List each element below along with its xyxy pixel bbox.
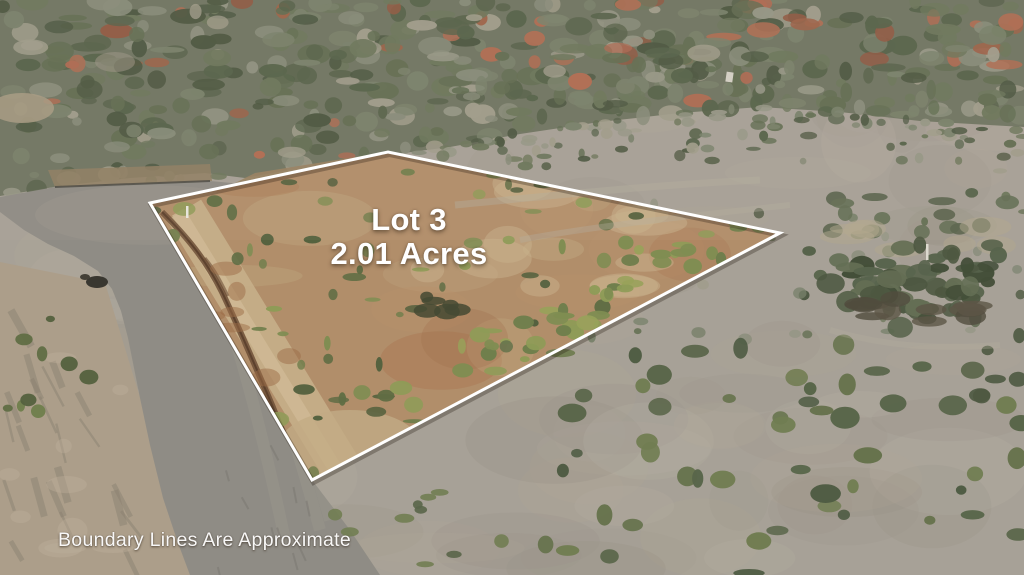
aerial-photo-canvas — [0, 0, 1024, 575]
aerial-listing-photo: Lot 3 2.01 Acres Boundary Lines Are Appr… — [0, 0, 1024, 575]
lot-label: Lot 3 2.01 Acres — [331, 203, 488, 271]
lot-acreage-text: 2.01 Acres — [331, 237, 488, 271]
lot-number-text: Lot 3 — [331, 203, 488, 237]
boundary-disclaimer-text: Boundary Lines Are Approximate — [58, 529, 351, 552]
